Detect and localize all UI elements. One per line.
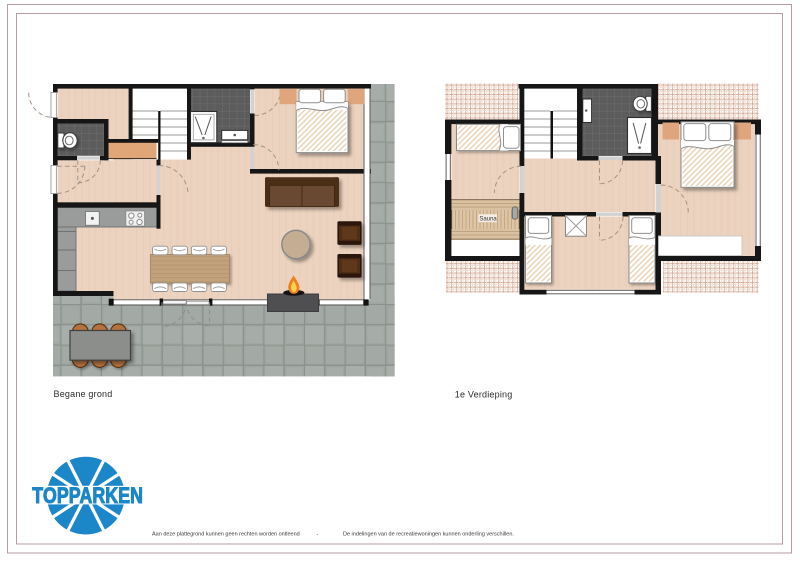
svg-text:1e Verdieping: 1e Verdieping xyxy=(455,389,513,399)
svg-text:Aan deze plattegrond kunnen ge: Aan deze plattegrond kunnen geen rechten… xyxy=(152,532,300,538)
svg-text:Begane grond: Begane grond xyxy=(54,389,113,399)
svg-text:-: - xyxy=(317,532,319,538)
svg-text:De indelingen van de recreatie: De indelingen van de recreatiewoningen k… xyxy=(343,532,514,538)
svg-text:Sauna: Sauna xyxy=(479,216,497,222)
svg-text:TOPPARKEN: TOPPARKEN xyxy=(32,484,143,508)
